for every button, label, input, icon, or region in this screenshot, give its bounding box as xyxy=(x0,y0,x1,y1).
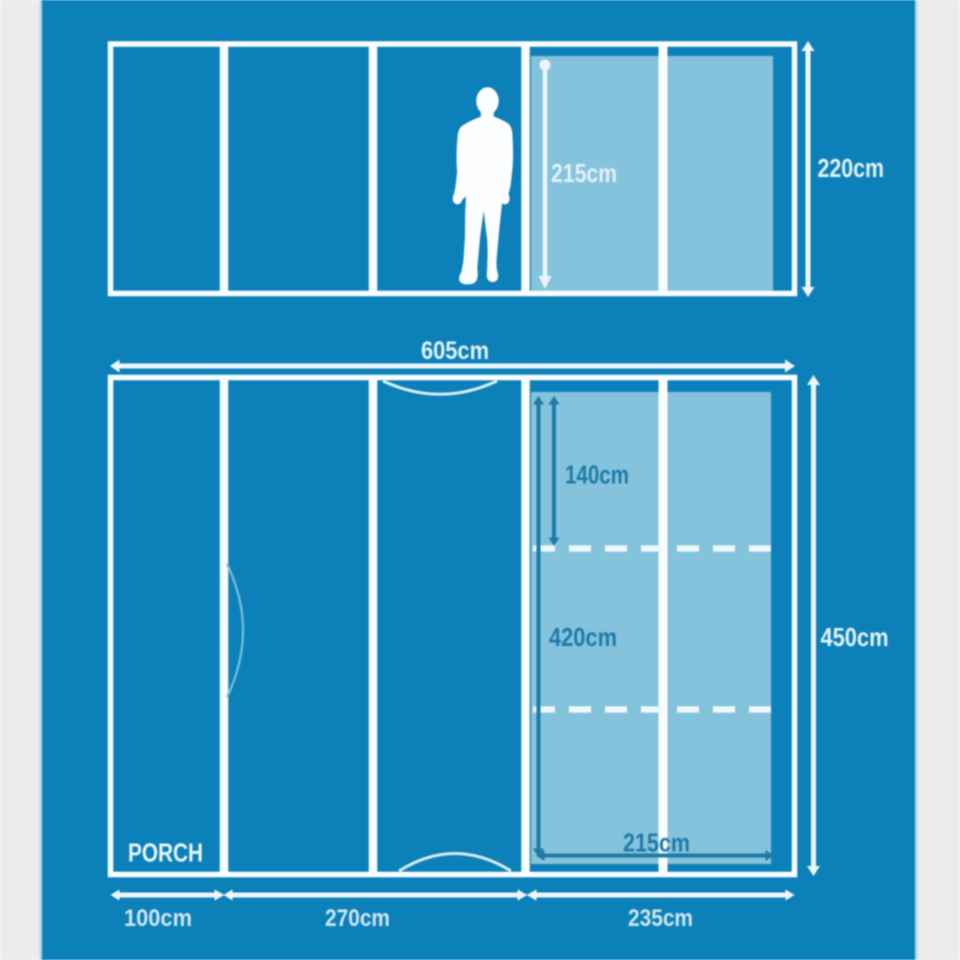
svg-text:270cm: 270cm xyxy=(325,905,390,932)
svg-text:605cm: 605cm xyxy=(421,337,489,365)
svg-text:100cm: 100cm xyxy=(124,905,192,932)
svg-text:215cm: 215cm xyxy=(623,828,690,858)
svg-text:215cm: 215cm xyxy=(551,158,617,188)
svg-text:PORCH: PORCH xyxy=(128,838,203,868)
svg-text:235cm: 235cm xyxy=(628,905,693,932)
svg-text:420cm: 420cm xyxy=(549,622,617,652)
svg-text:450cm: 450cm xyxy=(821,622,889,652)
svg-text:140cm: 140cm xyxy=(565,460,629,490)
svg-text:220cm: 220cm xyxy=(818,155,885,183)
